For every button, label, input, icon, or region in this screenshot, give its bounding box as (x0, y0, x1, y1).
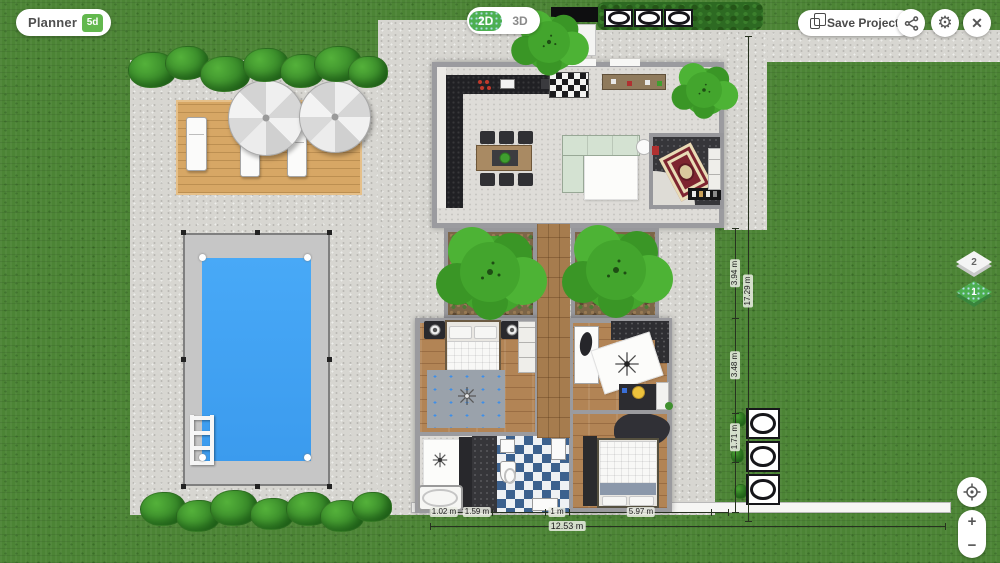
pool-ladder[interactable] (190, 415, 214, 465)
duvet (600, 441, 656, 483)
dimension-line-bottom-total (430, 526, 945, 527)
door-mat[interactable] (551, 7, 598, 22)
closet-floor (472, 436, 497, 513)
dimension-ticks (732, 228, 739, 229)
save-project-button[interactable]: Save Project (798, 10, 913, 36)
locate-button[interactable] (957, 477, 987, 507)
ceiling-fan[interactable] (457, 386, 477, 406)
table-runner[interactable] (492, 150, 518, 166)
dining-chairs-top[interactable] (480, 131, 495, 144)
study-cabinet[interactable] (708, 148, 721, 190)
save-project-label: Save Project (827, 16, 903, 30)
wall[interactable] (572, 410, 672, 414)
tab-2d[interactable]: 2D (469, 11, 502, 31)
wardrobe[interactable] (518, 321, 536, 373)
dimension-label: 1.71 m (730, 423, 740, 451)
sun-lounger[interactable] (186, 117, 207, 171)
share-nodes-icon (904, 16, 919, 31)
tree[interactable] (586, 240, 646, 300)
nightstand[interactable] (424, 321, 445, 339)
logo-text: Planner (28, 15, 77, 30)
planter-box[interactable] (664, 9, 693, 27)
kitchen-rug[interactable] (549, 72, 589, 98)
study-decor[interactable] (652, 146, 659, 155)
window[interactable] (560, 59, 596, 66)
dimension-label: 3.94 m (730, 259, 740, 287)
kitchen-counter[interactable] (446, 75, 463, 208)
tree[interactable] (460, 242, 520, 302)
window[interactable] (610, 59, 640, 66)
sideboard[interactable] (602, 74, 666, 90)
ceiling-fan[interactable] (432, 452, 448, 468)
floor-plan-canvas[interactable]: 3.94 m 17.29 m 3.48 m 1.71 m 1.02 m 1.59… (0, 0, 1000, 563)
dimension-ticks (430, 523, 431, 530)
planter-box[interactable] (604, 9, 633, 27)
pillow (474, 326, 497, 339)
sofa[interactable] (562, 135, 640, 156)
tab-3d[interactable]: 3D (502, 11, 537, 31)
dimension-ticks (745, 36, 752, 37)
pillow (629, 496, 654, 506)
dining-chairs-bottom[interactable] (480, 173, 495, 186)
zoom-out-button[interactable]: − (958, 537, 986, 555)
gear-icon: ⚙ (937, 13, 952, 33)
floor-1-tile[interactable]: 1 (956, 281, 992, 303)
toilet[interactable] (500, 461, 516, 483)
tree[interactable] (686, 72, 722, 108)
dimension-label: 1 m (548, 507, 565, 517)
settings-button[interactable]: ⚙ (931, 9, 959, 37)
pool-corner-markers (181, 230, 186, 235)
potted-plant[interactable] (665, 402, 673, 410)
paving-top-band (553, 30, 1000, 62)
sofa-chaise[interactable] (562, 155, 584, 193)
pillow (602, 496, 627, 506)
wall-white-left (437, 67, 446, 208)
zoom-in-button[interactable]: + (958, 513, 986, 531)
wardrobe-dark[interactable] (583, 436, 597, 506)
stove-burners[interactable] (478, 80, 482, 84)
patio-umbrella[interactable] (228, 80, 304, 156)
floor-1-label: 1 (971, 287, 977, 298)
floor-2-tile[interactable]: 2 (956, 251, 992, 273)
dimension-label: 17.29 m (743, 275, 753, 308)
view-mode-toggle[interactable]: 2D 3D (467, 7, 540, 34)
dimension-label: 5.97 m (627, 507, 655, 517)
bush[interactable] (352, 492, 392, 522)
planter-box[interactable] (746, 408, 780, 439)
dimension-label: 3.48 m (730, 351, 740, 379)
patio-umbrella[interactable] (299, 81, 371, 153)
planter-box[interactable] (746, 441, 780, 472)
planter-box[interactable] (746, 474, 780, 505)
pillow (449, 326, 472, 339)
desk-chair[interactable] (632, 386, 645, 399)
close-button[interactable]: ✕ (963, 9, 991, 37)
zoom-controls[interactable]: + − (958, 510, 986, 558)
close-icon: ✕ (971, 15, 983, 32)
blanket (600, 483, 656, 495)
dimension-label: 1.02 m (430, 507, 458, 517)
paving-right-strip (724, 35, 767, 230)
app-logo[interactable]: Planner 5d (16, 9, 111, 36)
pool-selection-handles[interactable] (199, 254, 206, 261)
dimension-label: 1.59 m (463, 507, 491, 517)
planter-box[interactable] (634, 9, 663, 27)
logo-5d-badge: 5d (82, 14, 103, 32)
dimension-label: 12.53 m (549, 521, 586, 531)
desk-monitor[interactable] (622, 388, 627, 393)
hallway-floor (537, 224, 570, 438)
shower[interactable] (500, 439, 515, 453)
ceiling-fan[interactable] (614, 351, 640, 377)
floor-2-label: 2 (971, 257, 977, 268)
bathroom-vanity[interactable] (551, 438, 566, 460)
pool-water[interactable] (202, 258, 311, 461)
bush[interactable] (348, 56, 388, 88)
crosshair-icon (963, 483, 981, 501)
kitchen-sink[interactable] (500, 79, 515, 89)
share-button[interactable] (897, 9, 925, 37)
living-rug[interactable] (584, 150, 638, 200)
copy-icon (810, 18, 820, 29)
